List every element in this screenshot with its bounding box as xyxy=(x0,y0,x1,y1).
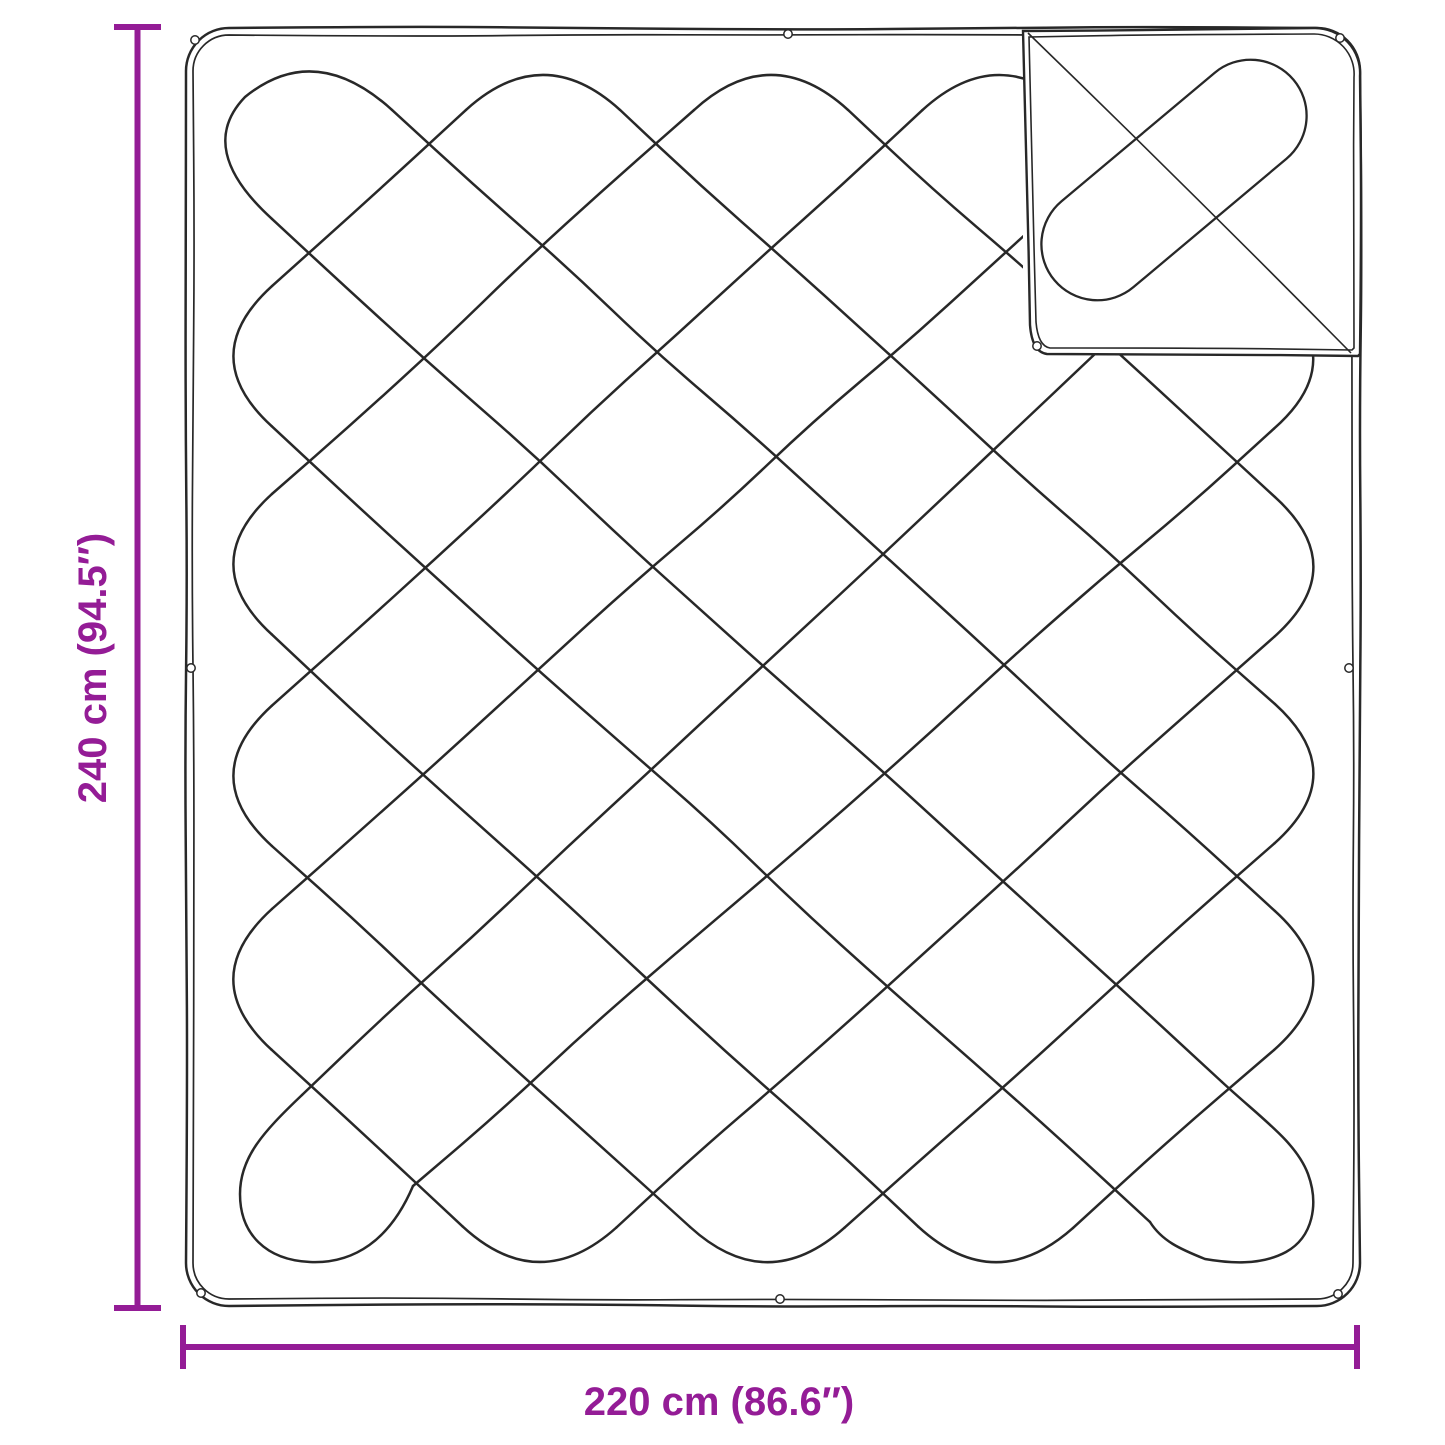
svg-text:240 cm (94.5″): 240 cm (94.5″) xyxy=(71,533,115,803)
svg-text:220 cm (86.6″): 220 cm (86.6″) xyxy=(584,1380,854,1424)
